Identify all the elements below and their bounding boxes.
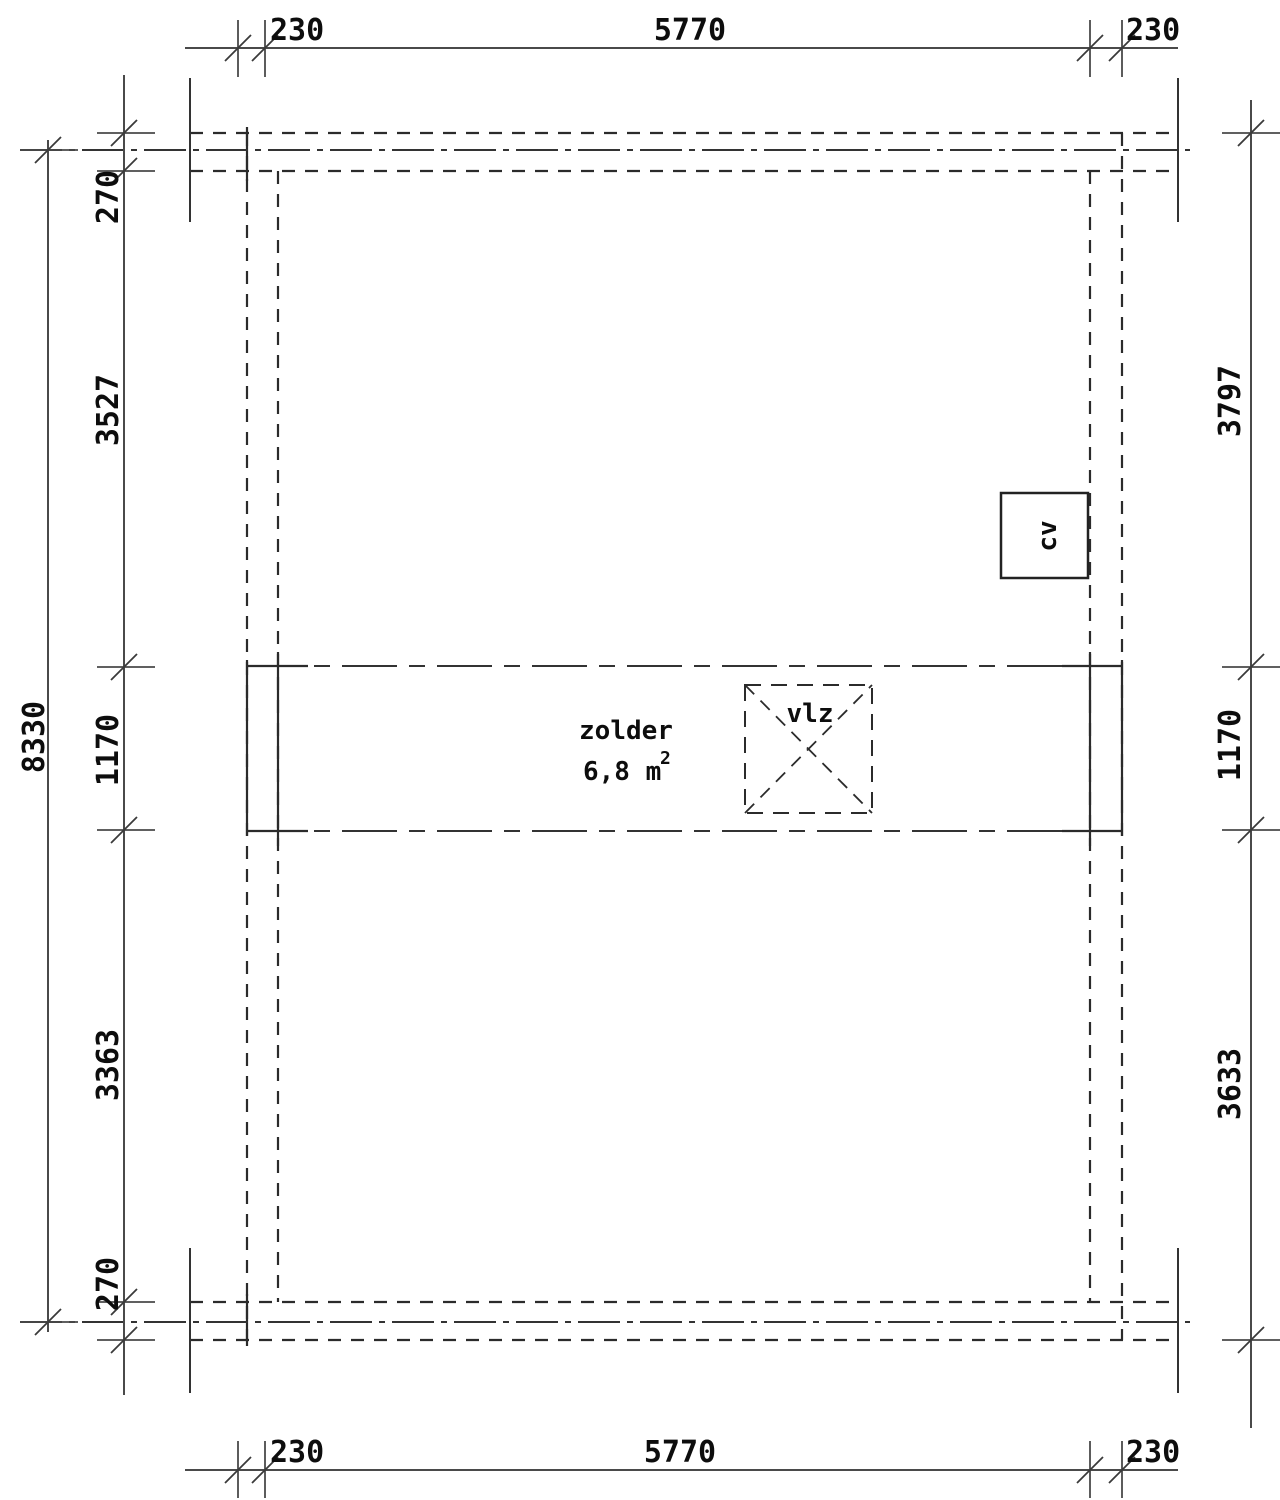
room-area-superscript: 2 xyxy=(660,748,671,769)
dim-right-3797: 3797 xyxy=(1213,365,1248,437)
dim-left-3363: 3363 xyxy=(91,1029,126,1101)
dim-left-3527: 3527 xyxy=(91,374,126,446)
dim-bottom-middle: 5770 xyxy=(644,1435,716,1470)
dim-top-right: 230 xyxy=(1126,13,1180,48)
floor-plan-svg: vlz cv zolder 6,8 m 2 xyxy=(0,0,1280,1500)
roof-hatch-vlz: vlz xyxy=(745,685,872,813)
wall-outline xyxy=(190,78,1178,1393)
dim-left-total-8330: 8330 xyxy=(17,701,52,773)
floor-plan-drawing: vlz cv zolder 6,8 m 2 xyxy=(0,0,1280,1500)
room-label: zolder 6,8 m 2 xyxy=(579,716,673,787)
room-name: zolder xyxy=(579,716,673,746)
cv-boiler: cv xyxy=(1001,493,1088,578)
dim-left-270-bottom: 270 xyxy=(91,1257,126,1311)
dim-bottom-right: 230 xyxy=(1126,1435,1180,1470)
dim-right-3633: 3633 xyxy=(1213,1048,1248,1120)
dim-left-1170: 1170 xyxy=(91,714,126,786)
dim-right-1170: 1170 xyxy=(1213,709,1248,781)
hatch-label: vlz xyxy=(787,699,834,729)
cv-label: cv xyxy=(1033,520,1063,551)
room-area: 6,8 m xyxy=(583,757,661,787)
dim-bottom-left: 230 xyxy=(270,1435,324,1470)
dim-top-middle: 5770 xyxy=(654,13,726,48)
dim-left-270-top: 270 xyxy=(91,170,126,224)
dim-top-left: 230 xyxy=(270,13,324,48)
floor-band xyxy=(247,666,1122,831)
